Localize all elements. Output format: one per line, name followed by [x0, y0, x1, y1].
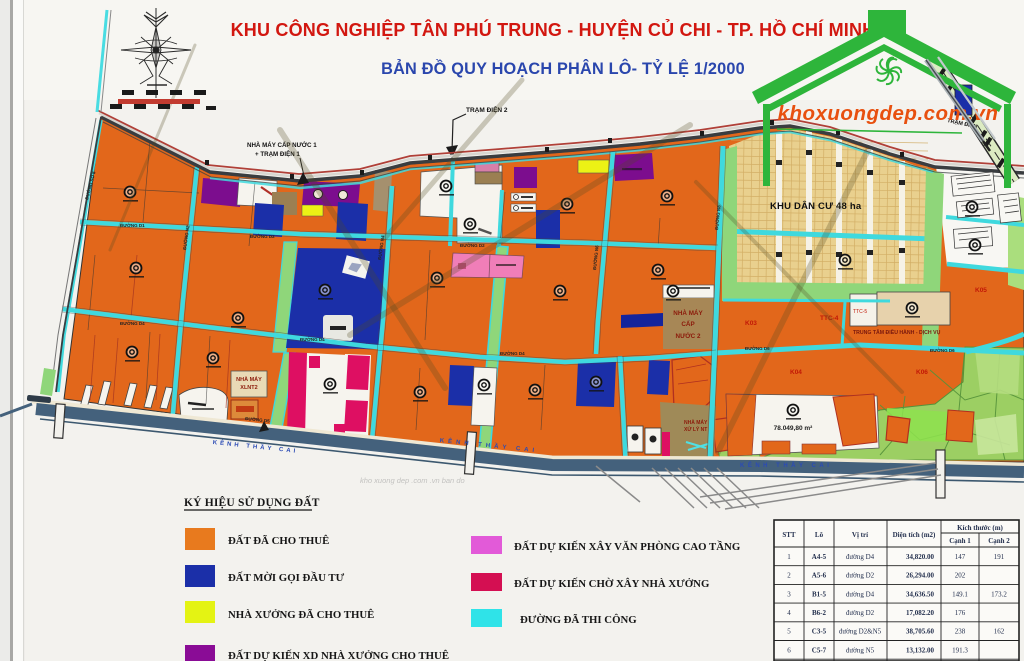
svg-text:6: 6 [787, 646, 791, 654]
svg-text:78.049,80 m²: 78.049,80 m² [774, 425, 814, 432]
svg-text:K03: K03 [745, 320, 757, 327]
svg-text:Cạnh 1: Cạnh 1 [949, 537, 971, 545]
svg-text:NHÀ MÁY: NHÀ MÁY [673, 308, 703, 317]
svg-text:Diện tích (m2): Diện tích (m2) [893, 531, 936, 539]
svg-text:kho xuong dep .com .vn ban do: kho xuong dep .com .vn ban do [360, 476, 465, 485]
svg-text:173.2: 173.2 [991, 590, 1007, 598]
svg-text:1: 1 [787, 553, 791, 561]
svg-text:34,820.00: 34,820.00 [906, 553, 935, 561]
svg-text:162: 162 [994, 628, 1005, 636]
svg-text:ĐƯỜNG D1: ĐƯỜNG D1 [120, 221, 145, 228]
svg-text:NHÀ MÁY: NHÀ MÁY [236, 376, 262, 383]
svg-text:A4-5: A4-5 [812, 553, 827, 561]
svg-text:Vị trí: Vị trí [852, 531, 869, 539]
svg-text:A5-6: A5-6 [812, 572, 827, 580]
svg-text:TTC-5: TTC-5 [853, 309, 867, 315]
svg-text:149.1: 149.1 [952, 590, 968, 598]
svg-text:ĐẤT DỰ KIẾN XD NHÀ XƯỞNG CHO T: ĐẤT DỰ KIẾN XD NHÀ XƯỞNG CHO THUÊ [228, 649, 449, 661]
svg-text:NHÀ MÁY CẤP NƯỚC 1: NHÀ MÁY CẤP NƯỚC 1 [247, 141, 317, 149]
svg-text:Kích thước (m): Kích thước (m) [957, 524, 1003, 532]
svg-text:5: 5 [787, 628, 791, 636]
svg-text:ĐƯỜNG D4: ĐƯỜNG D4 [300, 335, 325, 342]
svg-text:NHÀ MÁY: NHÀ MÁY [684, 419, 708, 426]
svg-text:ĐẤT ĐÃ CHO THUÊ: ĐẤT ĐÃ CHO THUÊ [228, 534, 329, 547]
svg-text:ĐẤT MỜI GỌI ĐẦU TƯ: ĐẤT MỜI GỌI ĐẦU TƯ [228, 571, 345, 584]
svg-text:202: 202 [955, 572, 966, 580]
svg-text:ĐƯỜNG D6: ĐƯỜNG D6 [930, 346, 955, 353]
svg-text:ĐƯỜNG ĐÃ THI CÔNG: ĐƯỜNG ĐÃ THI CÔNG [520, 613, 637, 626]
svg-text:4: 4 [787, 609, 791, 617]
svg-text:ĐẤT DỰ KIẾN XÂY VĂN PHÒNG CAO: ĐẤT DỰ KIẾN XÂY VĂN PHÒNG CAO TẦNG [514, 540, 741, 553]
svg-text:3: 3 [787, 590, 791, 598]
svg-text:đường D2&N5: đường D2&N5 [839, 628, 882, 636]
svg-text:đường N5: đường N5 [846, 646, 875, 654]
svg-text:ĐẤT DỰ KIẾN CHỜ XÂY NHÀ XƯỞNG: ĐẤT DỰ KIẾN CHỜ XÂY NHÀ XƯỞNG [514, 577, 710, 590]
svg-text:C5-7: C5-7 [812, 646, 827, 654]
svg-text:KÊNH THẦY CAI: KÊNH THẦY CAI [740, 461, 832, 469]
svg-text:ĐƯỜNG D4: ĐƯỜNG D4 [500, 349, 525, 356]
svg-text:176: 176 [955, 609, 966, 617]
svg-text:13,132.00: 13,132.00 [906, 646, 935, 654]
svg-text:26,294.00: 26,294.00 [906, 572, 935, 580]
svg-text:38,705.60: 38,705.60 [906, 628, 935, 636]
svg-text:34,636.50: 34,636.50 [906, 590, 935, 598]
svg-text:TRUNG TÂM ĐIỀU HÀNH - DỊCH VỤ: TRUNG TÂM ĐIỀU HÀNH - DỊCH VỤ [853, 329, 941, 336]
svg-text:STT: STT [782, 531, 796, 539]
svg-text:238: 238 [955, 628, 966, 636]
svg-text:NHÀ XƯỞNG ĐÃ CHO THUÊ: NHÀ XƯỞNG ĐÃ CHO THUÊ [228, 609, 374, 621]
svg-text:C3-5: C3-5 [812, 628, 827, 636]
svg-text:NƯỚC 2: NƯỚC 2 [676, 331, 701, 340]
svg-text:K06: K06 [916, 369, 928, 376]
svg-text:ĐƯỜNG D4: ĐƯỜNG D4 [120, 319, 145, 326]
svg-text:K04: K04 [790, 369, 802, 376]
svg-text:191.3: 191.3 [952, 646, 968, 654]
svg-text:đường D4: đường D4 [846, 553, 875, 561]
svg-text:ĐƯỜNG D2: ĐƯỜNG D2 [460, 241, 485, 248]
svg-text:đường D2: đường D2 [846, 572, 875, 580]
svg-text:K05: K05 [975, 287, 987, 294]
svg-text:ĐƯỜNG D2: ĐƯỜNG D2 [250, 232, 275, 239]
svg-text:B6-2: B6-2 [812, 609, 827, 617]
svg-text:KHU CÔNG NGHIỆP TÂN PHÚ TRUNG: KHU CÔNG NGHIỆP TÂN PHÚ TRUNG - HUYỆN CỦ… [231, 19, 876, 40]
svg-text:đường D4: đường D4 [846, 590, 875, 598]
svg-text:17,082.20: 17,082.20 [906, 609, 935, 617]
svg-text:147: 147 [955, 553, 966, 561]
svg-text:BẢN ĐỒ QUY HOẠCH PHÂN LÔ- TỶ L: BẢN ĐỒ QUY HOẠCH PHÂN LÔ- TỶ LỆ 1/2000 [381, 59, 745, 78]
svg-text:2: 2 [787, 572, 791, 580]
svg-text:đường D2: đường D2 [846, 609, 875, 617]
svg-text:XLNT2: XLNT2 [240, 385, 257, 391]
svg-text:Cạnh 2: Cạnh 2 [988, 537, 1010, 545]
svg-text:XỬ LÝ NT: XỬ LÝ NT [684, 426, 707, 433]
svg-text:KHU DÂN CƯ 48 ha: KHU DÂN CƯ 48 ha [770, 200, 862, 212]
svg-text:Lô: Lô [815, 531, 824, 539]
svg-text:191: 191 [994, 553, 1005, 561]
svg-text:KÝ HIỆU SỬ DỤNG ĐẤT: KÝ HIỆU SỬ DỤNG ĐẤT [184, 494, 320, 509]
svg-text:B1-5: B1-5 [812, 590, 827, 598]
